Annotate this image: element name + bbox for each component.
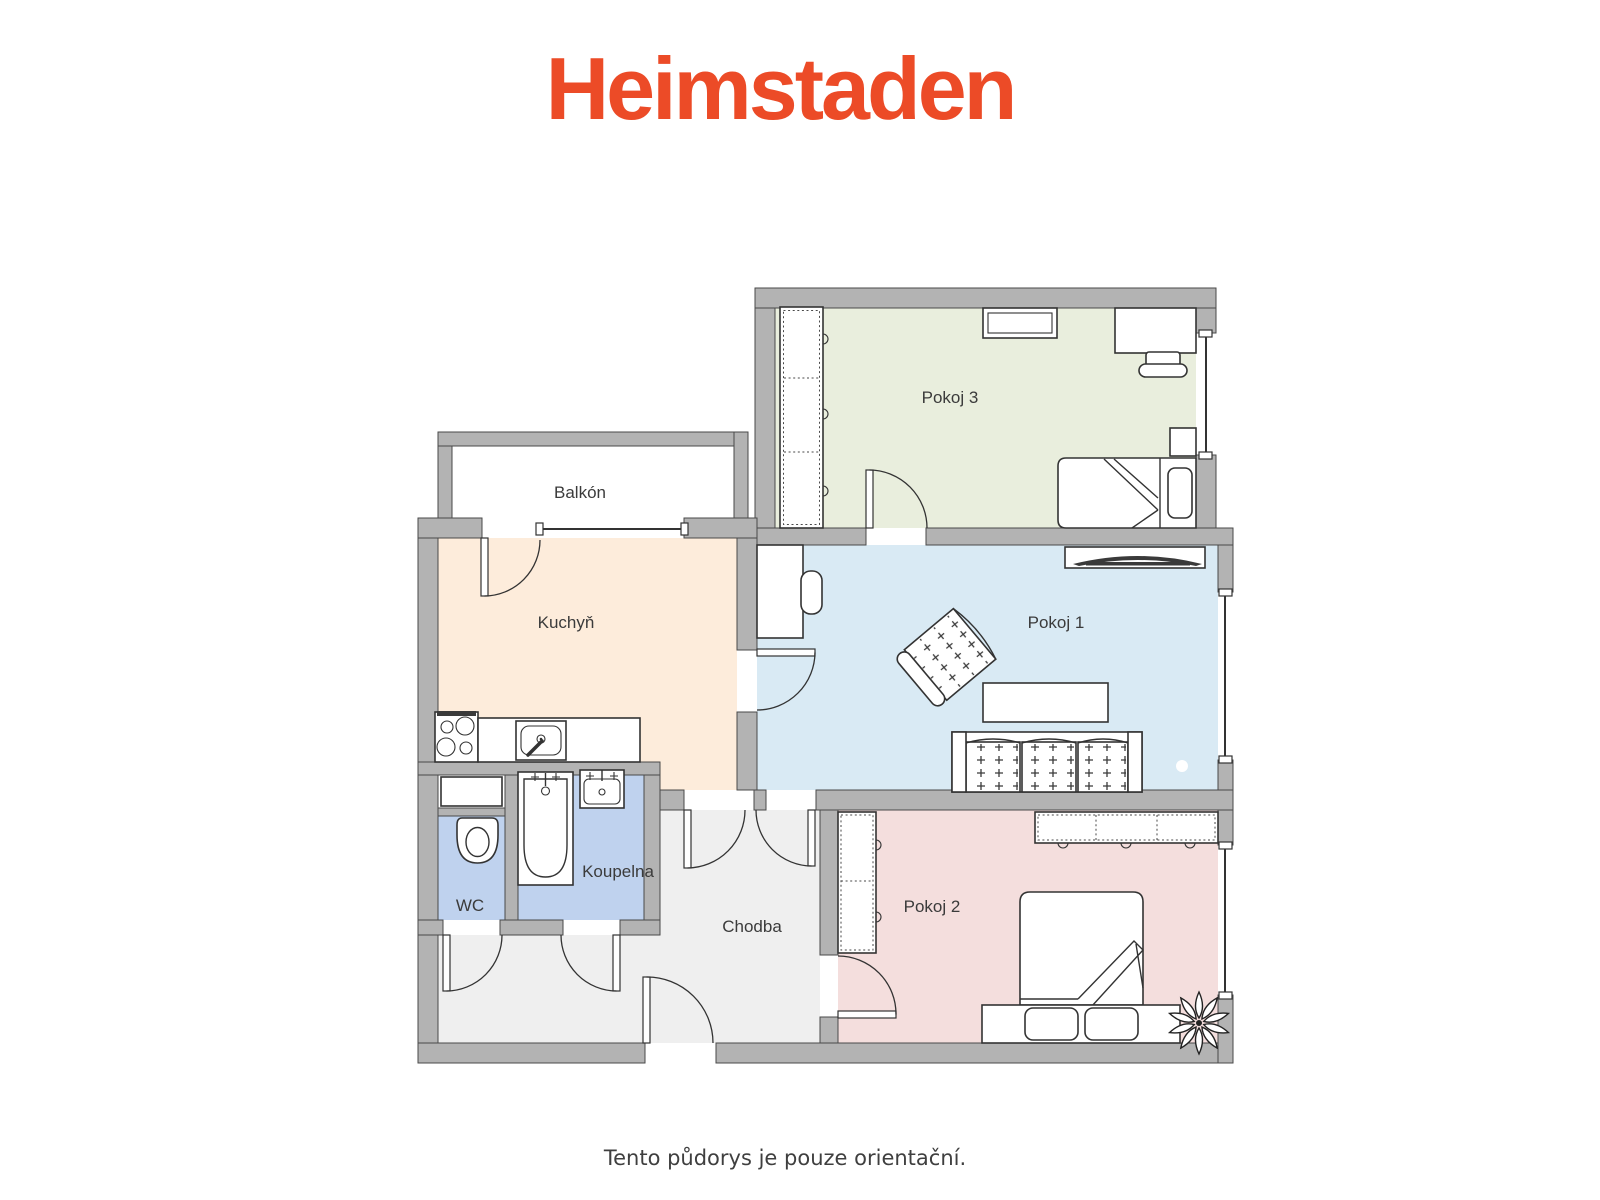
pokoj1-cabinet [757, 545, 803, 638]
pokoj3-chair [1139, 352, 1187, 377]
label-balkon: Balkón [554, 483, 606, 502]
label-pokoj2: Pokoj 2 [904, 897, 961, 916]
label-wc: WC [456, 896, 484, 915]
room-balkon [452, 446, 734, 518]
label-pokoj3: Pokoj 3 [922, 388, 979, 407]
pokoj1-chair [801, 571, 822, 614]
disclaimer-text: Tento půdorys je pouze orientační. [0, 1146, 1570, 1170]
wc-cabinet [441, 777, 502, 806]
pokoj2-double-bed [1020, 892, 1143, 1006]
koupelna-washbasin [580, 770, 624, 808]
pokoj2-wardrobe [838, 812, 881, 953]
pokoj2-bench [982, 1005, 1180, 1043]
pokoj3-wall-shelf [983, 308, 1057, 338]
label-koupelna: Koupelna [582, 862, 654, 881]
pokoj3-nightstand [1170, 428, 1196, 456]
pokoj3-wardrobe [780, 307, 828, 528]
label-chodba: Chodba [722, 917, 782, 936]
pokoj3-single-bed [1058, 458, 1196, 528]
window-pokoj2 [1219, 842, 1232, 999]
kitchen-stove [435, 711, 478, 762]
window-pokoj3 [1199, 330, 1212, 459]
label-kuchyn: Kuchyň [538, 613, 595, 632]
pokoj2-wall-shelf [1035, 812, 1218, 848]
pokoj1-coffee-table [983, 683, 1108, 722]
wc-toilet [457, 818, 498, 863]
koupelna-bathtub [518, 772, 573, 885]
pokoj1-tv-sideboard [1065, 547, 1205, 568]
pokoj3-desk [1115, 308, 1196, 353]
label-pokoj1: Pokoj 1 [1028, 613, 1085, 632]
pokoj1-sofa [952, 732, 1142, 792]
kitchen-sink [516, 721, 566, 760]
window-pokoj1 [1219, 589, 1232, 763]
window-balkon [536, 523, 688, 535]
floorplan: Pokoj 3 Balkón Kuchyň Pokoj 1 Koupelna W… [0, 0, 1600, 1200]
